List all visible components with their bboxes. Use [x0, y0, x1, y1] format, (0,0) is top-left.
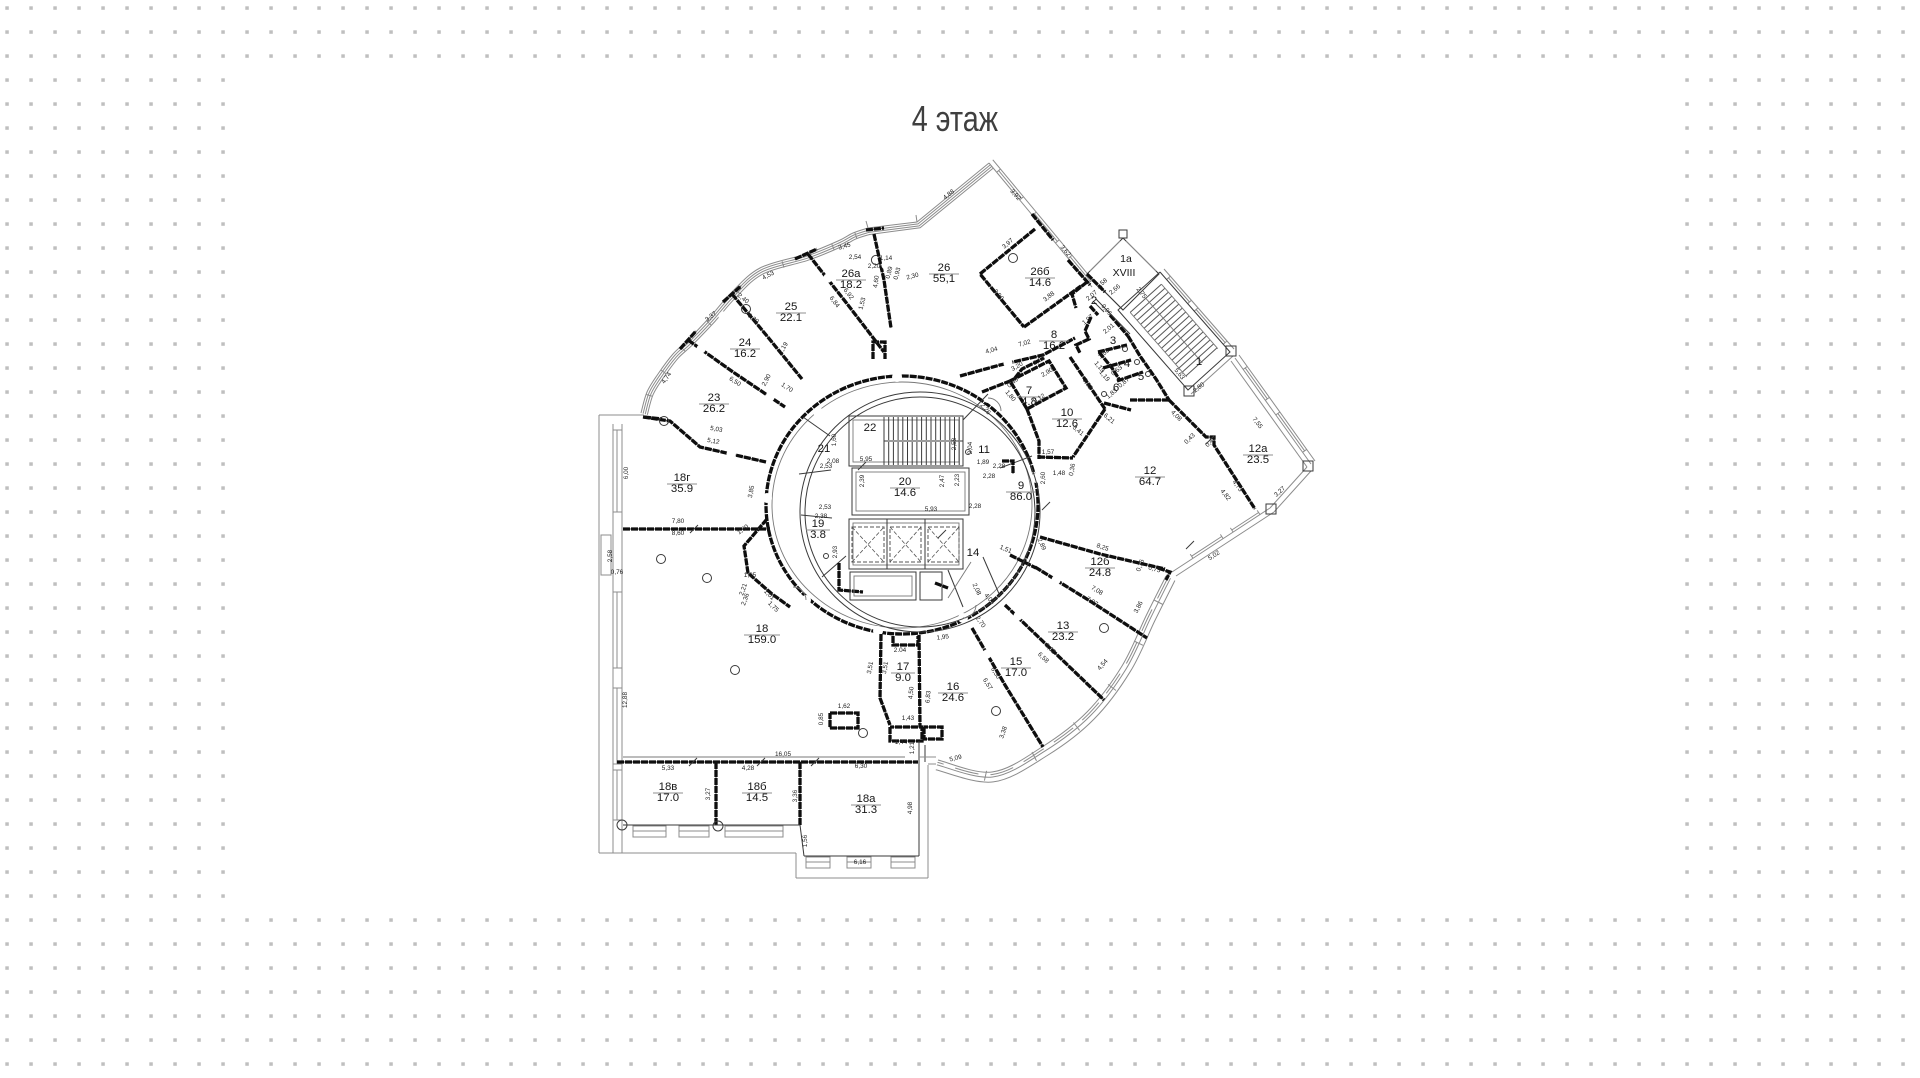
svg-text:1,53: 1,53: [858, 296, 868, 310]
svg-text:5,93: 5,93: [925, 506, 938, 513]
svg-text:159.0: 159.0: [748, 634, 777, 646]
svg-text:2,60: 2,60: [1040, 471, 1047, 484]
svg-text:1,56: 1,56: [802, 834, 809, 847]
svg-text:4,98: 4,98: [907, 801, 914, 814]
svg-text:1,60: 1,60: [736, 523, 751, 536]
svg-text:2,28: 2,28: [969, 503, 982, 510]
svg-text:16,05: 16,05: [775, 751, 791, 758]
svg-text:3,38: 3,38: [998, 725, 1009, 739]
svg-text:2,53: 2,53: [819, 504, 832, 511]
svg-text:4,50: 4,50: [907, 686, 915, 699]
svg-text:6,39: 6,39: [746, 312, 760, 325]
svg-text:0,76: 0,76: [611, 569, 624, 576]
svg-text:2,80: 2,80: [1192, 381, 1206, 394]
svg-text:2,30: 2,30: [906, 271, 920, 281]
svg-text:7,55: 7,55: [1251, 416, 1264, 430]
svg-text:4,82: 4,82: [1219, 488, 1232, 502]
svg-text:XVIII: XVIII: [1113, 267, 1136, 279]
svg-text:1,43: 1,43: [902, 715, 915, 722]
svg-text:3,86: 3,86: [1133, 600, 1145, 615]
svg-text:1,89: 1,89: [977, 459, 990, 466]
svg-text:6,57: 6,57: [981, 677, 994, 692]
svg-text:3,88: 3,88: [1042, 290, 1056, 303]
svg-text:8,25: 8,25: [1095, 542, 1109, 553]
svg-text:3,37: 3,37: [704, 310, 718, 323]
svg-text:6,21: 6,21: [1102, 412, 1116, 426]
svg-text:22.1: 22.1: [780, 312, 802, 324]
svg-text:4,74: 4,74: [660, 371, 673, 386]
svg-text:31.3: 31.3: [855, 804, 877, 816]
svg-text:2,01: 2,01: [1102, 322, 1116, 336]
svg-text:2,08: 2,08: [971, 582, 983, 597]
svg-text:5,09: 5,09: [949, 754, 963, 764]
svg-text:1: 1: [1196, 356, 1202, 368]
svg-text:1,01: 1,01: [762, 588, 776, 602]
svg-text:2,54: 2,54: [849, 254, 862, 261]
svg-text:2,19: 2,19: [778, 341, 791, 356]
svg-text:17.0: 17.0: [657, 792, 679, 804]
svg-text:24.8: 24.8: [1089, 567, 1111, 579]
svg-text:0,85: 0,85: [818, 712, 825, 725]
svg-text:2,58: 2,58: [951, 437, 958, 450]
svg-text:35.9: 35.9: [671, 483, 693, 495]
svg-text:14.6: 14.6: [1029, 277, 1051, 289]
svg-text:1,70: 1,70: [780, 381, 795, 394]
svg-text:2,93: 2,93: [832, 545, 839, 558]
svg-text:4: 4: [1124, 358, 1130, 370]
svg-text:16.2: 16.2: [734, 348, 756, 360]
svg-text:2,28: 2,28: [993, 463, 1006, 470]
svg-text:8,60: 8,60: [672, 530, 685, 537]
svg-text:26.2: 26.2: [703, 403, 725, 415]
svg-text:14.5: 14.5: [746, 792, 768, 804]
svg-text:2,53: 2,53: [820, 463, 833, 470]
svg-text:6,00: 6,00: [623, 466, 630, 479]
svg-text:7,02: 7,02: [1018, 338, 1032, 348]
svg-text:7,08: 7,08: [1090, 584, 1105, 597]
svg-text:5,03: 5,03: [710, 425, 724, 434]
svg-text:0,43: 0,43: [1183, 432, 1197, 446]
svg-text:2,28: 2,28: [983, 473, 996, 480]
svg-text:2,58: 2,58: [607, 549, 614, 562]
svg-text:24.6: 24.6: [942, 692, 964, 704]
svg-text:4,04: 4,04: [985, 345, 999, 355]
svg-text:22: 22: [864, 422, 877, 434]
svg-text:1,62: 1,62: [838, 703, 851, 710]
svg-text:11: 11: [978, 444, 990, 456]
svg-text:1,60: 1,60: [831, 433, 838, 446]
svg-text:1,48: 1,48: [1053, 470, 1066, 477]
svg-text:16.2: 16.2: [1043, 340, 1065, 352]
svg-text:3,51: 3,51: [881, 661, 890, 675]
svg-text:1,19: 1,19: [1097, 369, 1111, 383]
svg-text:1,75: 1,75: [766, 600, 780, 614]
svg-text:3,85: 3,85: [747, 485, 756, 499]
svg-text:4,60: 4,60: [872, 275, 881, 289]
svg-text:2.04: 2.04: [894, 647, 907, 654]
svg-text:5: 5: [1138, 371, 1144, 383]
svg-text:23.5: 23.5: [1247, 454, 1269, 466]
svg-text:6,58: 6,58: [1036, 651, 1050, 665]
svg-text:2,23: 2,23: [954, 473, 961, 486]
svg-text:3,51: 3,51: [866, 661, 875, 675]
svg-text:1а: 1а: [1120, 253, 1132, 265]
svg-text:6,16: 6,16: [854, 859, 867, 866]
svg-text:2,38: 2,38: [815, 513, 828, 520]
svg-text:23.2: 23.2: [1052, 631, 1074, 643]
svg-text:2,47: 2,47: [939, 474, 946, 487]
svg-text:1,44: 1,44: [895, 739, 908, 746]
svg-text:14.6: 14.6: [894, 487, 916, 499]
svg-text:1,05: 1,05: [744, 572, 757, 579]
svg-text:2,70: 2,70: [974, 615, 987, 630]
svg-text:1,21: 1,21: [909, 741, 916, 754]
svg-text:4,06: 4,06: [982, 592, 996, 606]
svg-text:55,1: 55,1: [933, 273, 955, 285]
svg-text:3,41: 3,41: [1071, 424, 1085, 438]
svg-text:4,28: 4,28: [742, 765, 755, 772]
svg-text:7,80: 7,80: [672, 518, 685, 525]
svg-text:5,95: 5,95: [860, 456, 873, 463]
svg-text:12,88: 12,88: [622, 692, 629, 708]
svg-text:2,39: 2,39: [859, 474, 866, 487]
svg-text:3,36: 3,36: [792, 789, 799, 802]
svg-text:5,33: 5,33: [662, 765, 675, 772]
svg-text:17.0: 17.0: [1005, 667, 1027, 679]
svg-text:5,02: 5,02: [1207, 549, 1222, 562]
svg-text:5,12: 5,12: [707, 437, 721, 446]
svg-text:3.8: 3.8: [810, 529, 826, 541]
svg-text:3,27: 3,27: [705, 787, 712, 800]
svg-text:6,84: 6,84: [828, 295, 841, 310]
svg-text:2,90: 2,90: [761, 373, 773, 388]
svg-text:1,57: 1,57: [1042, 449, 1055, 456]
svg-text:6,83: 6,83: [924, 690, 932, 703]
svg-text:1,14: 1,14: [880, 255, 893, 262]
svg-text:1,95: 1,95: [936, 633, 950, 642]
svg-text:64.7: 64.7: [1139, 476, 1161, 488]
svg-text:6,30: 6,30: [855, 763, 868, 770]
svg-text:2,66: 2,66: [1108, 283, 1122, 297]
svg-text:2,20: 2,20: [868, 263, 881, 270]
svg-text:21: 21: [818, 443, 831, 455]
svg-text:86.0: 86.0: [1010, 491, 1032, 503]
svg-text:14: 14: [967, 547, 980, 559]
svg-text:0,36: 0,36: [1068, 463, 1077, 477]
svg-text:9.0: 9.0: [895, 672, 911, 684]
svg-text:4,54: 4,54: [1096, 658, 1110, 672]
svg-text:3: 3: [1110, 335, 1116, 347]
